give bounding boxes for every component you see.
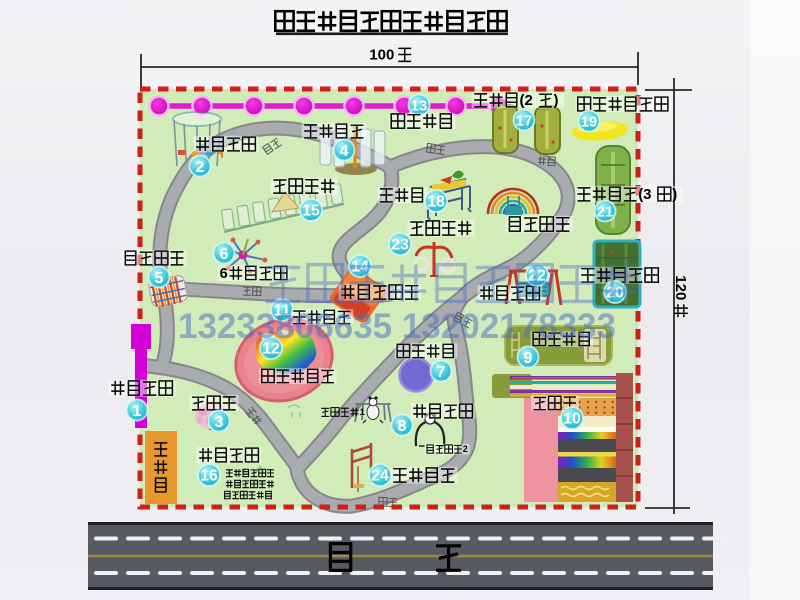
svg-text:): ) [554, 92, 559, 109]
svg-text:16: 16 [200, 468, 218, 485]
svg-text:2: 2 [196, 159, 205, 176]
svg-text:7: 7 [437, 364, 446, 381]
svg-text:13233806635 13202178333: 13233806635 13202178333 [178, 307, 616, 346]
svg-text:8: 8 [398, 418, 407, 435]
svg-text:(2: (2 [520, 92, 533, 109]
svg-text:10: 10 [563, 411, 581, 428]
svg-text:21: 21 [597, 203, 614, 220]
svg-text:5: 5 [155, 270, 164, 287]
svg-text:): ) [672, 186, 677, 203]
svg-text:6: 6 [220, 246, 229, 263]
svg-text:17: 17 [516, 112, 533, 129]
svg-text:1: 1 [133, 403, 142, 420]
svg-text:19: 19 [581, 113, 598, 130]
svg-text:100: 100 [369, 47, 394, 64]
svg-text:13: 13 [411, 97, 428, 114]
svg-text:6: 6 [220, 266, 228, 282]
svg-text:2: 2 [463, 444, 468, 454]
svg-text:(3: (3 [638, 186, 651, 203]
svg-text:24: 24 [371, 468, 389, 485]
svg-text:120: 120 [672, 275, 689, 300]
svg-text:4: 4 [340, 143, 349, 160]
svg-text:15: 15 [302, 203, 320, 220]
svg-text:9: 9 [524, 350, 533, 367]
svg-text:3: 3 [215, 414, 224, 431]
svg-text:23: 23 [391, 237, 409, 254]
svg-text:1: 1 [360, 407, 366, 418]
svg-text:20: 20 [606, 285, 624, 302]
svg-text:18: 18 [427, 194, 445, 211]
